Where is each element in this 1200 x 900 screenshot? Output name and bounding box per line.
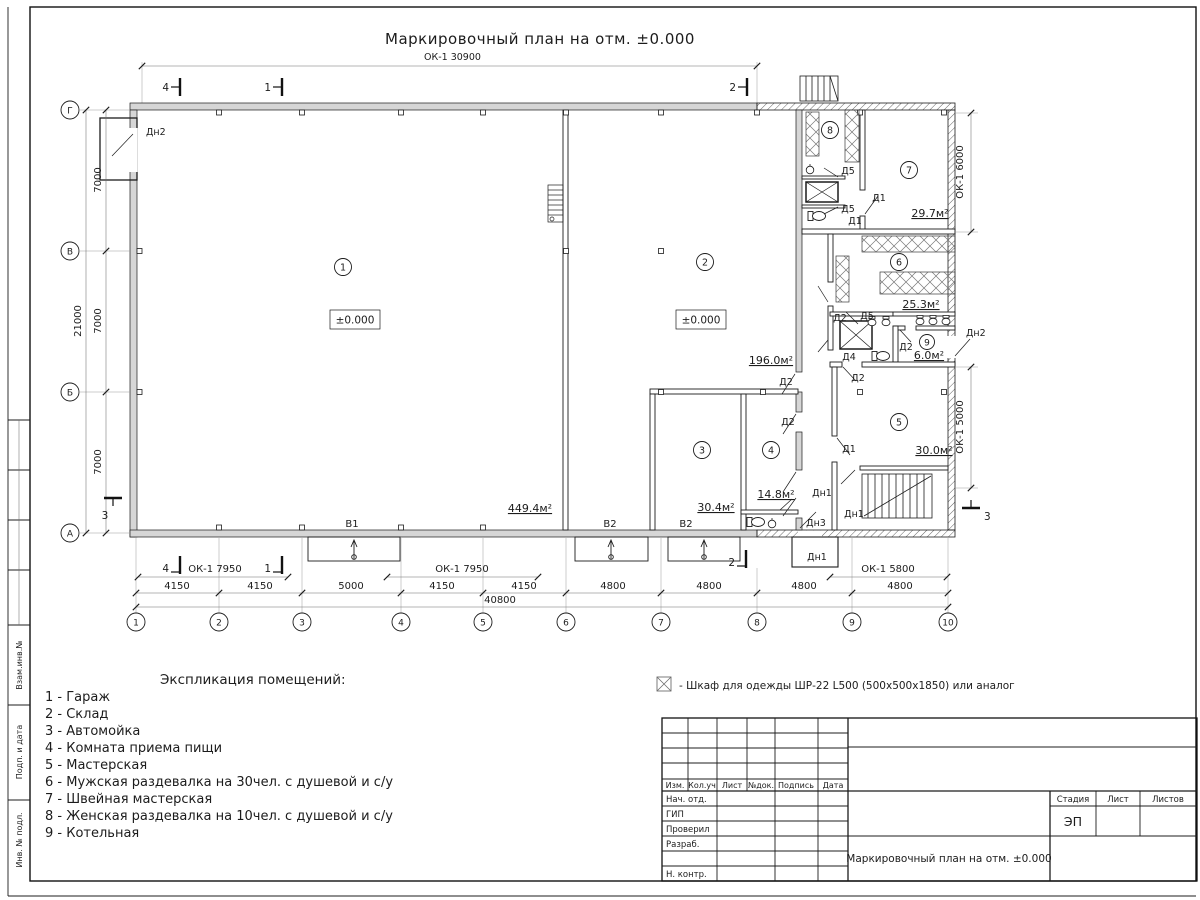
legend-item: 5 - Мастерская	[45, 758, 147, 773]
legend-item: 2 - Склад	[45, 707, 108, 722]
dim-total: 40800	[484, 595, 516, 606]
room-area: 14.8м²	[757, 488, 794, 501]
door-label: Д2	[833, 313, 846, 324]
tb-sig: ГИП	[666, 810, 684, 820]
door-label: Д5	[841, 166, 854, 177]
rooms: 1 2 3 4 5 6 7 8 9 449.4м² 196.0м² 30.4м²…	[330, 122, 953, 516]
section-2-bottom: 2	[728, 557, 735, 569]
axis-col: 5	[480, 619, 486, 629]
tb-header: Изм.	[666, 781, 685, 790]
axis-col: 7	[658, 619, 664, 629]
dim-segment: 4800	[887, 581, 912, 592]
room-number: 5	[896, 418, 902, 429]
section-4-bottom: 4	[162, 563, 169, 575]
dimensions-right: ОК-1 6000 ОК-1 5000	[955, 110, 978, 491]
room-number: 7	[906, 166, 912, 177]
room-area: 25.3м²	[902, 298, 939, 311]
section-marks-top: 4 1 2	[162, 78, 747, 96]
level-mark: ±0.000	[336, 315, 375, 327]
door-label: Д5	[860, 311, 873, 322]
door-label: Д1	[848, 216, 861, 227]
frame-strip: Взам.инв.№ Подп. и дата Инв. № подл.	[8, 420, 30, 868]
section-4-top: 4	[162, 82, 169, 94]
door-label: Д4	[842, 352, 855, 363]
sheet-frame: Взам.инв.№ Подп. и дата Инв. № подл.	[8, 7, 1196, 896]
door-label: Д2	[779, 377, 792, 388]
door-label: Д2	[781, 417, 794, 428]
washbasin	[916, 316, 924, 325]
axis-col: 3	[299, 619, 305, 629]
wardrobe-icon	[657, 677, 671, 691]
tb-header: №док.	[748, 781, 774, 790]
door-label: Д2	[851, 373, 864, 384]
gate-v2a	[575, 537, 648, 561]
axis-col: 6	[563, 619, 569, 629]
sink	[806, 164, 814, 174]
dim-segment: 7000	[93, 449, 104, 474]
washbasin	[882, 317, 890, 326]
title-block: Изм. Кол.уч Лист №док. Подпись Дата Нач.…	[662, 718, 1197, 881]
dim-segment: 7000	[93, 308, 104, 333]
section-3-right: 3	[984, 511, 991, 523]
plan-canvas: Взам.инв.№ Подп. и дата Инв. № подл. Мар…	[0, 0, 1200, 900]
legend-item: 3 - Автомойка	[45, 724, 140, 739]
columns	[137, 110, 947, 530]
dim-segment: 4800	[696, 581, 721, 592]
room-number: 9	[924, 339, 930, 349]
plan-header: Маркировочный план на отм. ±0.000 ОК-1 3…	[139, 30, 760, 103]
door-label: Дн1	[812, 488, 832, 499]
legend-item: 7 - Швейная мастерская	[45, 792, 212, 807]
locker-strip	[845, 110, 859, 162]
washbasin	[929, 316, 937, 325]
dim-window: ОК-1 5800	[861, 564, 915, 575]
room-area: 29.7м²	[911, 207, 948, 220]
locker-strip	[836, 256, 849, 302]
top-window-dim: ОК-1 30900	[424, 52, 481, 63]
room-number: 4	[768, 446, 774, 457]
room-area: 30.4м²	[697, 501, 734, 514]
locker-island	[880, 272, 955, 294]
door-label: Д2	[899, 342, 912, 353]
toilet	[747, 518, 765, 527]
section-2-top: 2	[729, 82, 736, 94]
tb-sig: Проверил	[666, 825, 710, 835]
axis-col: 2	[216, 619, 222, 629]
dim-window: ОК-1 6000	[955, 145, 966, 199]
tb-sig: Нач. отд.	[666, 795, 707, 805]
room-area: 196.0м²	[749, 354, 793, 367]
tb-header: Дата	[823, 781, 844, 790]
dim-segment: 4150	[247, 581, 272, 592]
tb-stage-header: Листов	[1152, 795, 1184, 805]
toilet	[808, 212, 826, 221]
dim-segment: 4150	[164, 581, 189, 592]
door-label: Д5	[841, 204, 854, 215]
axis-col: 1	[133, 619, 139, 629]
room-area: 30.0м²	[915, 444, 952, 457]
tb-header: Кол.уч	[688, 781, 716, 790]
strip-label-podp: Подп. и дата	[15, 725, 24, 780]
locker-row	[862, 236, 955, 252]
axis-row: Г	[67, 107, 73, 117]
axis-bubbles-bottom: 1 2 3 4 5 6 7 8 9 10	[127, 613, 957, 631]
axis-col: 8	[754, 619, 760, 629]
door-label: Дн1	[807, 552, 827, 563]
legend-item: 8 - Женская раздевалка на 10чел. с душев…	[45, 809, 393, 824]
tb-sig: Н. контр.	[666, 870, 707, 880]
axis-col: 4	[398, 619, 404, 629]
room-number: 8	[827, 126, 833, 137]
dim-total: 21000	[73, 305, 84, 337]
tb-header: Подпись	[778, 781, 814, 790]
legend-item: 4 - Комната приема пищи	[45, 741, 222, 756]
door-label: Дн2	[966, 328, 986, 339]
axis-row: В	[67, 248, 73, 258]
room-number: 2	[702, 258, 708, 269]
legend-item: 6 - Мужская раздевалка на 30чел. с душев…	[45, 775, 393, 790]
stairs-hall	[862, 474, 932, 518]
fixtures	[548, 76, 955, 528]
dim-segment: 4150	[511, 581, 536, 592]
room-number: 6	[896, 258, 902, 269]
dim-window: ОК-1 7950	[435, 564, 489, 575]
section-3-left: 3	[102, 510, 109, 522]
dim-window: ОК-1 5000	[955, 400, 966, 454]
tb-sig: Разраб.	[666, 840, 699, 850]
tb-stage-header: Стадия	[1057, 795, 1090, 805]
door-label: Д1	[872, 193, 885, 204]
shower-cabin	[840, 321, 872, 349]
legend-item: 9 - Котельная	[45, 826, 139, 841]
level-mark: ±0.000	[682, 315, 721, 327]
dim-segment: 4800	[791, 581, 816, 592]
building-walls	[100, 103, 956, 537]
room-number: 1	[340, 263, 346, 274]
axis-row: Б	[67, 389, 73, 399]
legend-heading: Экспликация помещений:	[160, 672, 346, 688]
level-marks: ±0.000 ±0.000	[330, 310, 726, 329]
dimensions-bottom: ОК-1 7950 ОК-1 7950 ОК-1 5800 4 1 2 4150…	[127, 538, 957, 631]
room-area: 6.0м²	[914, 349, 944, 362]
washbasin	[942, 316, 950, 325]
wardrobe-note: - Шкаф для одежды ШР-22 L500 (500х500х18…	[657, 677, 1015, 692]
strip-label-vzam: Взам.инв.№	[15, 640, 24, 690]
door-label: Дн1	[844, 509, 864, 520]
stairs-internal	[548, 185, 563, 222]
axis-col: 10	[942, 619, 954, 629]
gate-v1	[308, 537, 400, 561]
dim-segment: 5000	[338, 581, 363, 592]
stairs-entrance	[800, 76, 838, 101]
section-1-top: 1	[264, 82, 271, 94]
dim-segment: 7000	[93, 167, 104, 192]
dim-window: ОК-1 7950	[188, 564, 242, 575]
gate-label: В1	[345, 519, 358, 530]
room-area: 449.4м²	[508, 502, 552, 515]
section-1-bottom: 1	[264, 563, 271, 575]
strip-label-inv: Инв. № подл.	[15, 812, 24, 867]
legend: Экспликация помещений: 1 - Гараж 2 - Скл…	[45, 672, 393, 841]
tb-header: Лист	[722, 781, 743, 790]
sink	[768, 518, 776, 528]
page-title: Маркировочный план на отм. ±0.000	[385, 30, 695, 48]
shower-cabin	[806, 182, 838, 202]
locker-strip	[806, 112, 819, 156]
tb-stage-value: ЭП	[1064, 814, 1082, 829]
tb-stage-header: Лист	[1107, 795, 1129, 805]
door-label: Д1	[842, 444, 855, 455]
drawing-sheet: Взам.инв.№ Подп. и дата Инв. № подл. Мар…	[0, 0, 1200, 900]
gate-label: В2	[679, 519, 692, 530]
axis-col: 9	[849, 619, 855, 629]
dim-segment: 4150	[429, 581, 454, 592]
door-label: Дн3	[806, 518, 826, 529]
room-number: 3	[699, 446, 705, 457]
legend-item: 1 - Гараж	[45, 690, 110, 705]
door-label: Дн2	[146, 127, 166, 138]
tb-doc-title: Маркировочный план на отм. ±0.000	[846, 853, 1051, 865]
toilet	[872, 352, 890, 361]
axis-row: А	[67, 530, 74, 540]
gate-label: В2	[603, 519, 616, 530]
dim-segment: 4800	[600, 581, 625, 592]
note-text: - Шкаф для одежды ШР-22 L500 (500х500х18…	[679, 680, 1015, 692]
